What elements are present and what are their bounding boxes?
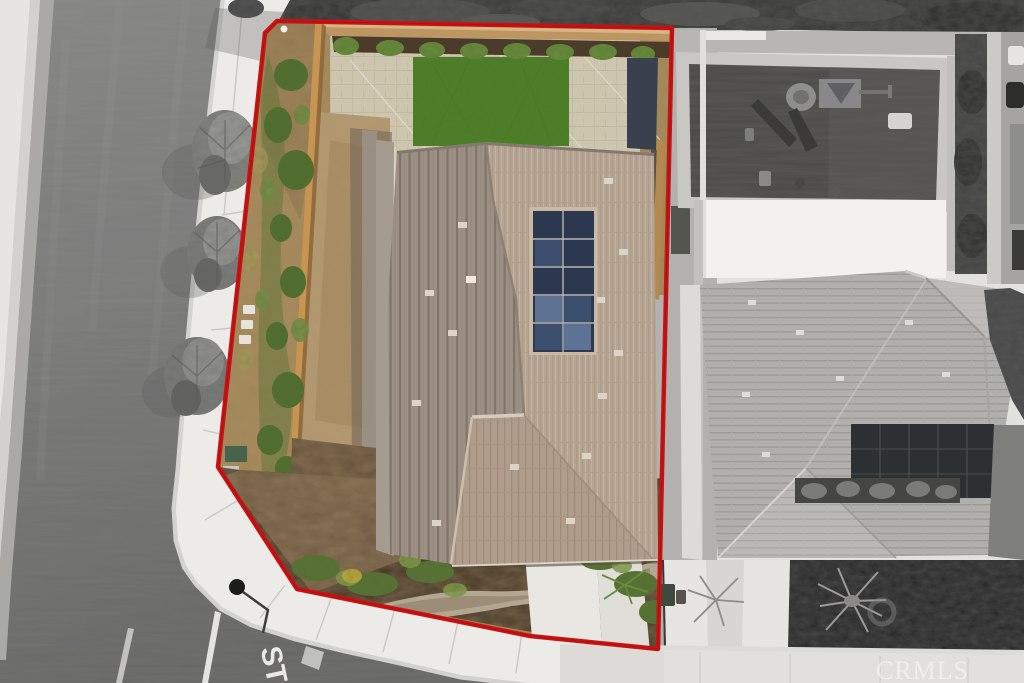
- svg-text:CRMLS: CRMLS: [876, 656, 969, 683]
